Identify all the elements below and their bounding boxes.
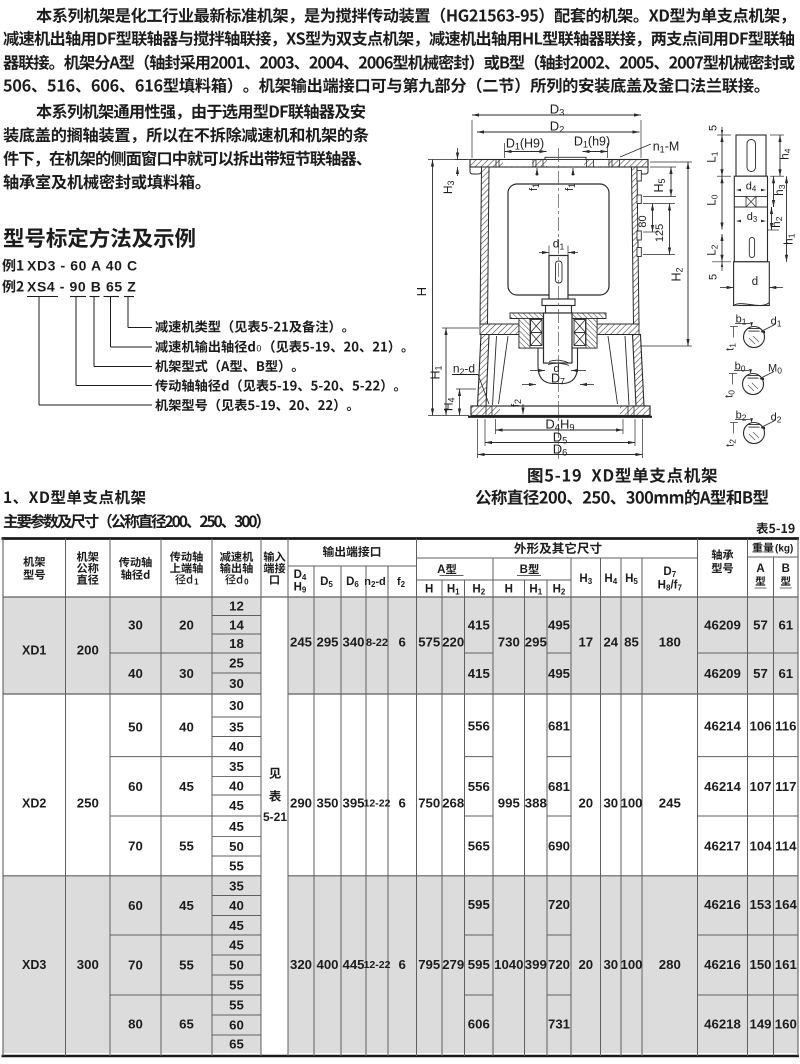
svg-text:750: 750 [418,796,440,811]
svg-text:n2-d: n2-d [364,576,386,589]
svg-text:h1: h1 [783,233,796,244]
svg-text:160: 160 [775,1017,797,1032]
svg-text:55: 55 [229,998,244,1013]
svg-text:731: 731 [548,1017,570,1032]
svg-text:D7: D7 [551,372,565,387]
svg-text:1: 1 [194,578,199,587]
svg-text:XD3 - 60 A 40 C: XD3 - 60 A 40 C [27,258,138,274]
svg-text:25: 25 [229,656,244,671]
svg-text:57: 57 [753,666,768,681]
svg-text:268: 268 [442,796,464,811]
svg-text:556: 556 [468,719,490,734]
svg-text:40: 40 [229,739,244,754]
svg-text:150: 150 [749,957,771,972]
svg-text:46216: 46216 [704,957,741,972]
svg-text:30: 30 [229,698,244,713]
svg-text:60: 60 [128,779,143,794]
svg-text:60: 60 [128,898,143,913]
svg-text:65: 65 [179,1017,194,1032]
svg-text:85: 85 [624,635,639,650]
svg-text:100: 100 [620,957,642,972]
svg-text:200: 200 [77,643,99,658]
svg-text:350: 350 [316,796,338,811]
svg-text:245: 245 [290,635,312,650]
svg-text:0: 0 [256,344,261,354]
svg-text:279: 279 [442,957,464,972]
svg-text:20: 20 [578,796,593,811]
svg-text:H8/f7: H8/f7 [658,580,683,593]
svg-text:0: 0 [244,578,249,587]
svg-text:117: 117 [775,779,796,794]
svg-text:17: 17 [578,635,593,650]
svg-text:46216: 46216 [704,897,741,912]
svg-text:30: 30 [128,618,143,633]
svg-text:280: 280 [659,957,681,972]
svg-text:L0: L0 [706,194,719,205]
svg-text:5: 5 [708,125,720,131]
svg-text:106: 106 [749,719,771,734]
svg-text:D3: D3 [550,102,565,118]
svg-text:D4: D4 [294,569,307,582]
svg-text:50: 50 [128,720,143,735]
svg-text:46214: 46214 [704,719,741,734]
svg-text:40: 40 [179,720,194,735]
svg-text:46209: 46209 [704,666,741,681]
svg-text:40: 40 [128,666,143,681]
svg-text:80: 80 [637,215,649,227]
svg-text:606: 606 [468,1017,490,1032]
svg-text:b1: b1 [736,314,747,327]
svg-text:164: 164 [775,897,798,912]
svg-text:35: 35 [229,878,244,893]
svg-text:6: 6 [399,635,406,650]
svg-text:149: 149 [749,1017,771,1032]
svg-text:B: B [520,564,528,576]
svg-text:45: 45 [229,938,244,953]
svg-text:A: A [756,563,764,575]
svg-text:18: 18 [229,636,244,651]
svg-text:H5: H5 [652,178,667,192]
svg-text:70: 70 [128,958,143,973]
svg-text:104: 104 [749,839,772,854]
svg-text:H2: H2 [472,584,485,597]
svg-text:995: 995 [498,796,520,811]
svg-text:L2: L2 [706,244,719,255]
svg-text:46214: 46214 [704,779,741,794]
svg-text:80: 80 [128,1017,143,1032]
svg-text:D2: D2 [550,119,565,135]
svg-text:H1: H1 [529,584,542,597]
svg-text:250: 250 [77,796,99,811]
svg-text:114: 114 [775,839,797,854]
svg-text:595: 595 [468,957,490,972]
svg-text:681: 681 [548,719,570,734]
svg-text:30: 30 [179,666,194,681]
svg-text:20: 20 [179,618,194,633]
svg-text:107: 107 [749,779,771,794]
svg-text:D6: D6 [346,576,359,589]
svg-text:730: 730 [498,635,520,650]
svg-text:H5: H5 [625,573,638,586]
svg-text:245: 245 [659,796,681,811]
svg-text:f2: f2 [397,576,406,589]
svg-text:h3: h3 [774,184,787,195]
svg-text:20: 20 [578,957,593,972]
svg-text:495: 495 [548,666,570,681]
svg-text:681: 681 [548,779,570,794]
svg-text:H: H [425,584,433,596]
svg-text:H1: H1 [447,584,460,597]
svg-text:161: 161 [775,957,797,972]
svg-text:5: 5 [708,274,720,280]
svg-text:h4: h4 [779,148,792,159]
svg-text:1040: 1040 [494,957,523,972]
svg-text:320: 320 [290,957,312,972]
svg-text:H4: H4 [604,573,617,586]
svg-text:720: 720 [548,897,570,912]
svg-text:t0: t0 [724,390,737,398]
svg-text:40: 40 [229,898,244,913]
svg-text:690: 690 [548,839,570,854]
svg-text:290: 290 [290,796,312,811]
svg-text:14: 14 [229,617,244,632]
svg-text:399: 399 [525,957,547,972]
svg-text:116: 116 [775,719,796,734]
svg-text:t1: t1 [725,343,738,351]
svg-text:D1(h9): D1(h9) [574,135,610,150]
svg-text:30: 30 [603,957,618,972]
svg-text:6: 6 [399,957,406,972]
svg-text:55: 55 [229,859,244,874]
svg-text:8-22: 8-22 [366,637,388,649]
svg-text:65: 65 [229,1037,244,1052]
svg-text:388: 388 [525,796,547,811]
svg-text:57: 57 [753,618,768,633]
svg-text:H1: H1 [429,365,444,379]
svg-text:50: 50 [229,958,244,973]
svg-text:XS4 - 90 B 65 Z: XS4 - 90 B 65 Z [27,279,136,295]
svg-text:720: 720 [548,957,570,972]
svg-text:B: B [782,563,790,575]
svg-text:55: 55 [179,958,194,973]
svg-text:400: 400 [316,957,338,972]
svg-text:180: 180 [659,635,681,650]
svg-text:565: 565 [468,839,490,854]
svg-text:295: 295 [525,635,547,650]
svg-text:30: 30 [603,796,618,811]
svg-text:45: 45 [229,798,244,813]
svg-text:d2: d2 [771,412,782,425]
svg-text:L1: L1 [706,151,719,162]
svg-text:45: 45 [229,819,244,834]
svg-text:6: 6 [399,796,406,811]
svg-text:t2: t2 [725,439,738,447]
svg-text:D1(H9): D1(H9) [506,137,544,152]
svg-text:d: d [752,276,758,288]
svg-text:395: 395 [342,796,364,811]
svg-text:415: 415 [468,666,490,681]
svg-text:45: 45 [179,898,194,913]
svg-text:XD1: XD1 [22,643,46,657]
svg-text:d1: d1 [771,316,782,329]
svg-text:H2: H2 [670,267,685,281]
svg-text:595: 595 [468,897,490,912]
svg-text:XD3: XD3 [22,958,46,972]
svg-text:295: 295 [316,635,338,650]
svg-text:H: H [505,584,513,596]
svg-text:n1-M: n1-M [653,140,680,155]
svg-text:46217: 46217 [704,839,741,854]
svg-text:46209: 46209 [704,618,741,633]
svg-text:24: 24 [603,635,618,650]
svg-text:H3: H3 [579,573,592,586]
svg-text:575: 575 [418,635,440,650]
svg-text:H3: H3 [441,180,456,194]
svg-text:H9: H9 [294,582,307,595]
svg-text:(kg): (kg) [775,544,793,555]
svg-text:40: 40 [229,778,244,793]
svg-text:61: 61 [778,666,793,681]
svg-text:45: 45 [229,918,244,933]
svg-text:12-22: 12-22 [364,959,391,971]
svg-text:46218: 46218 [704,1017,741,1032]
svg-text:556: 556 [468,779,490,794]
svg-text:61: 61 [778,618,793,633]
svg-text:35: 35 [229,719,244,734]
svg-text:495: 495 [548,618,570,633]
svg-text:D7: D7 [663,566,676,579]
svg-text:415: 415 [468,618,490,633]
svg-text:45: 45 [179,779,194,794]
svg-text:12: 12 [229,599,244,614]
svg-text:A: A [437,564,445,576]
svg-text:795: 795 [418,957,440,972]
svg-text:H: H [414,287,429,296]
svg-text:55: 55 [179,839,194,854]
svg-text:70: 70 [128,839,143,854]
svg-text:h2: h2 [771,216,784,227]
svg-text:60: 60 [229,1018,244,1033]
svg-text:55: 55 [229,978,244,993]
svg-text:125: 125 [654,224,666,242]
svg-text:D5: D5 [320,576,333,589]
svg-text:12-22: 12-22 [364,798,391,810]
svg-text:b2: b2 [736,410,747,423]
svg-text:220: 220 [442,635,464,650]
svg-text:XD2: XD2 [22,796,46,810]
svg-text:H4: H4 [441,397,456,411]
svg-text:50: 50 [229,839,244,854]
svg-text:340: 340 [342,635,364,650]
svg-text:b0: b0 [735,361,746,374]
svg-text:f2: f2 [510,399,523,407]
svg-text:30: 30 [229,676,244,691]
svg-text:H2: H2 [553,584,566,597]
svg-text:445: 445 [342,957,364,972]
svg-text:35: 35 [229,759,244,774]
svg-text:5-21: 5-21 [263,810,287,824]
svg-text:300: 300 [77,957,99,972]
svg-text:100: 100 [620,796,642,811]
svg-text:153: 153 [749,897,771,912]
